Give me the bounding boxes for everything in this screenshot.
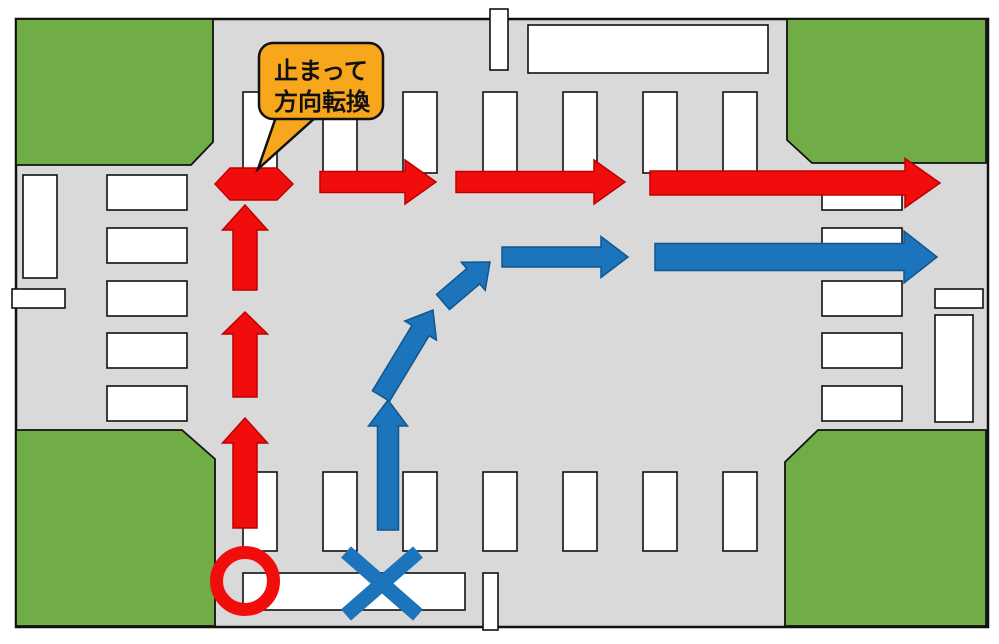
crosswalk-stripe (822, 386, 902, 421)
west-stop-line (23, 175, 57, 278)
north-sidewalk-line (528, 25, 768, 73)
callout-text-line2: 方向転換 (274, 88, 371, 116)
crosswalk-stripe (643, 92, 677, 173)
corner-block-bottom-right (785, 430, 986, 626)
crosswalk-stripe (563, 472, 597, 551)
red-stop-point-hexagon (215, 168, 293, 200)
south-road-median-mark (483, 573, 498, 630)
crosswalk-stripe (403, 92, 437, 173)
west-road-median-mark (12, 289, 65, 308)
crosswalk-stripe (723, 92, 757, 173)
corner-block-top-right (787, 19, 986, 163)
crosswalk-stripe (483, 472, 517, 551)
east-road-median-mark (935, 289, 983, 308)
crosswalk-stripe (822, 281, 902, 316)
crosswalk-stripe (107, 228, 187, 263)
crosswalk-stripe (483, 92, 517, 173)
north-road-median-mark (490, 9, 508, 70)
crosswalk-stripe (107, 333, 187, 368)
east-stop-line (935, 315, 973, 422)
crosswalk-stripe (643, 472, 677, 551)
crosswalk-stripe (107, 281, 187, 316)
crosswalk-stripe (403, 472, 437, 551)
corner-block-bottom-left (16, 430, 215, 626)
crosswalk-stripe (107, 386, 187, 421)
callout-text-line1: 止まって (274, 57, 368, 85)
crosswalk-stripe (107, 175, 187, 210)
corner-block-top-left (16, 19, 213, 165)
crosswalk-stripe (563, 92, 597, 173)
crosswalk-stripe (822, 333, 902, 368)
crosswalk-stripe (323, 472, 357, 551)
crosswalk-stripe (723, 472, 757, 551)
intersection-diagram: 止まって 方向転換 (0, 0, 999, 644)
